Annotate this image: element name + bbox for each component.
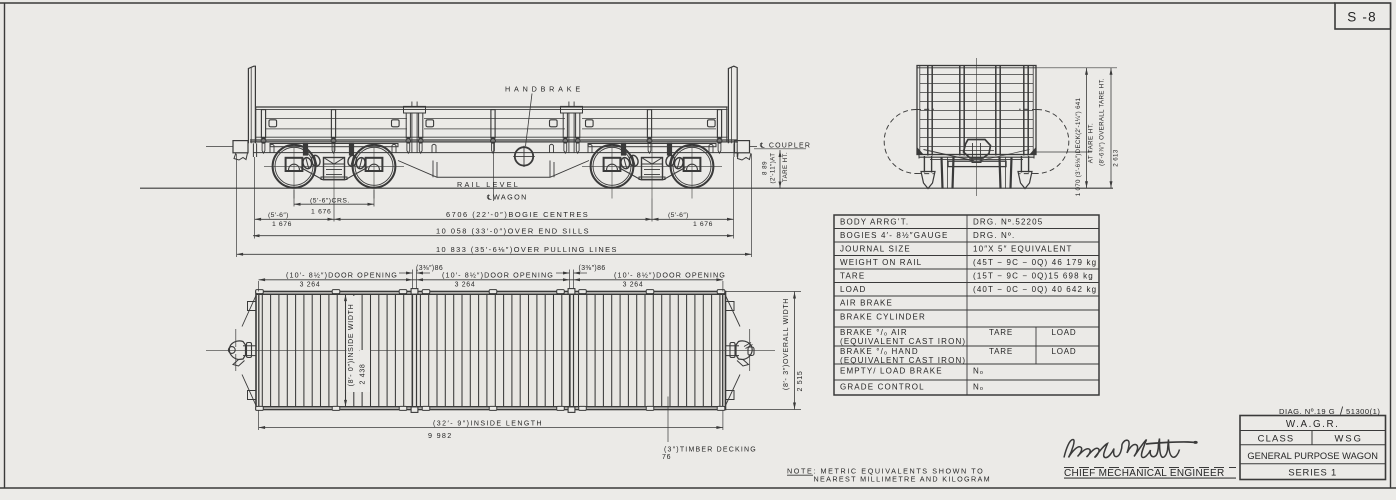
svg-text:2 613: 2 613 (1113, 149, 1120, 167)
svg-text:(10′- 8½″)DOOR OPENING: (10′- 8½″)DOOR OPENING (442, 270, 554, 279)
svg-text:DRG. Nº.: DRG. Nº. (973, 231, 1015, 240)
svg-text:10 833 (35′-6⅛″)OVER PULLING: 10 833 (35′-6⅛″)OVER PULLING LINES (436, 245, 618, 254)
svg-text:76: 76 (662, 454, 671, 461)
svg-text:Nₒ: Nₒ (973, 383, 984, 392)
svg-text:(32′- 9″)INSIDE LENGTH: (32′- 9″)INSIDE LENGTH (433, 420, 543, 427)
svg-text:(EQUIVALENT CAST IRON): (EQUIVALENT CAST IRON) (840, 356, 966, 365)
svg-text:(8′-6⅞″) OVERALL TARE HT.: (8′-6⅞″) OVERALL TARE HT. (1099, 78, 1106, 166)
svg-text:CLASS: CLASS (1258, 433, 1295, 444)
svg-text:AT TARE HT.: AT TARE HT. (1088, 123, 1095, 163)
svg-text:1 676: 1 676 (272, 221, 292, 228)
svg-text:BRAKE CYLINDER: BRAKE CYLINDER (840, 313, 926, 322)
svg-text:LOAD: LOAD (1052, 347, 1077, 356)
svg-text:10 058 (33′-0″)OVER END SILL: 10 058 (33′-0″)OVER END SILLS (436, 226, 590, 235)
svg-text:W.A.G.R.: W.A.G.R. (1286, 419, 1340, 430)
svg-text:NEAREST MILLIMETRE AND K: NEAREST MILLIMETRE AND KILOGRAM (814, 475, 992, 484)
svg-text:1 676: 1 676 (693, 221, 713, 228)
svg-text:DIAG. Nº.19 G: DIAG. Nº.19 G (1279, 407, 1335, 416)
svg-text:SERIES 1: SERIES 1 (1288, 466, 1337, 477)
svg-text:BOGIES 4′- 8½″GAUGE: BOGIES 4′- 8½″GAUGE (840, 231, 948, 240)
svg-text:2 438: 2 438 (360, 363, 367, 384)
svg-text:S -8: S -8 (1347, 10, 1377, 25)
svg-text:℄WAGON: ℄WAGON (486, 193, 528, 202)
svg-text:(8′- 3″)OVERALL WIDTH: (8′- 3″)OVERALL WIDTH (783, 298, 790, 390)
svg-text:1 070 (3′-6⅛″)DECK(2′-1¼″) 64: 1 070 (3′-6⅛″)DECK(2′-1¼″) 641 (1075, 97, 1082, 196)
svg-text:(45T − 9C − 0Q) 46 179 kg: (45T − 9C − 0Q) 46 179 kg (973, 258, 1097, 267)
svg-text:(2′-11")AT: (2′-11")AT (770, 153, 777, 184)
svg-text:3 264: 3 264 (623, 282, 644, 289)
svg-text:Nₒ: Nₒ (973, 367, 984, 376)
svg-text:(15T − 9C − 0Q)15 698 kg: (15T − 9C − 0Q)15 698 kg (973, 272, 1094, 281)
svg-text:HANDBRAKE: HANDBRAKE (505, 85, 584, 94)
svg-text:51300(1): 51300(1) (1346, 407, 1380, 416)
svg-text:(EQUIVALENT CAST IRON): (EQUIVALENT CAST IRON) (840, 337, 966, 346)
svg-text:(3⅜″)86: (3⅜″)86 (579, 265, 606, 272)
svg-text:(10′- 8½″)DOOR OPENING: (10′- 8½″)DOOR OPENING (286, 270, 398, 279)
svg-text:(5′-6″): (5′-6″) (668, 212, 689, 219)
svg-text:3 264: 3 264 (455, 282, 476, 289)
svg-text:JOURNAL SIZE: JOURNAL SIZE (840, 245, 911, 254)
svg-text:(5′-6″)CRS.: (5′-6″)CRS. (310, 197, 350, 204)
svg-text:RAIL LEVEL: RAIL LEVEL (457, 180, 520, 189)
svg-text:(3⅜″)86: (3⅜″)86 (416, 265, 443, 272)
svg-text:TARE: TARE (989, 347, 1013, 356)
svg-text:BODY ARRG’T.: BODY ARRG’T. (840, 218, 909, 227)
svg-text:TARE: TARE (989, 328, 1013, 337)
svg-text:GRADE CONTROL: GRADE CONTROL (840, 383, 925, 392)
svg-text:6706 (22′-0″)BOGIE CENTRES: 6706 (22′-0″)BOGIE CENTRES (446, 210, 589, 219)
svg-text:AIR BRAKE: AIR BRAKE (840, 299, 893, 308)
svg-text:LOAD: LOAD (840, 285, 866, 294)
svg-text:(3″)TIMBER DECKING: (3″)TIMBER DECKING (664, 447, 757, 454)
svg-text:(8′- 0″)INSIDE WIDTH: (8′- 0″)INSIDE WIDTH (348, 304, 355, 387)
svg-text:(40T − 0C − 0Q) 40 642 kg: (40T − 0C − 0Q) 40 642 kg (973, 285, 1097, 294)
svg-text:8 89: 8 89 (762, 161, 769, 175)
svg-text:3 264: 3 264 (300, 282, 321, 289)
svg-text:LOAD: LOAD (1052, 328, 1077, 337)
svg-text:1 676: 1 676 (311, 209, 332, 216)
svg-text:TARE HT.: TARE HT. (782, 152, 789, 182)
svg-text:WEIGHT ON RAIL: WEIGHT ON RAIL (840, 258, 922, 267)
svg-text:9 982: 9 982 (428, 431, 453, 440)
svg-text:GENERAL PURPOSE WAGON: GENERAL PURPOSE WAGON (1247, 451, 1378, 461)
svg-text:(10′- 8½″)DOOR OPENING: (10′- 8½″)DOOR OPENING (614, 270, 726, 279)
svg-text:10″X 5″ EQUIVALENT: 10″X 5″ EQUIVALENT (973, 245, 1073, 254)
svg-text:2 515: 2 515 (797, 370, 804, 391)
svg-text:TARE: TARE (840, 272, 865, 281)
svg-text:(5′-6″): (5′-6″) (268, 212, 289, 219)
svg-text:DRG. Nº.52205: DRG. Nº.52205 (973, 218, 1043, 227)
svg-text:EMPTY/ LOAD BRAKE: EMPTY/ LOAD BRAKE (840, 367, 943, 376)
svg-text:CHIEF MECHANICAL ENGINEER: CHIEF MECHANICAL ENGINEER (1064, 468, 1224, 479)
svg-text:WSG: WSG (1334, 433, 1362, 444)
